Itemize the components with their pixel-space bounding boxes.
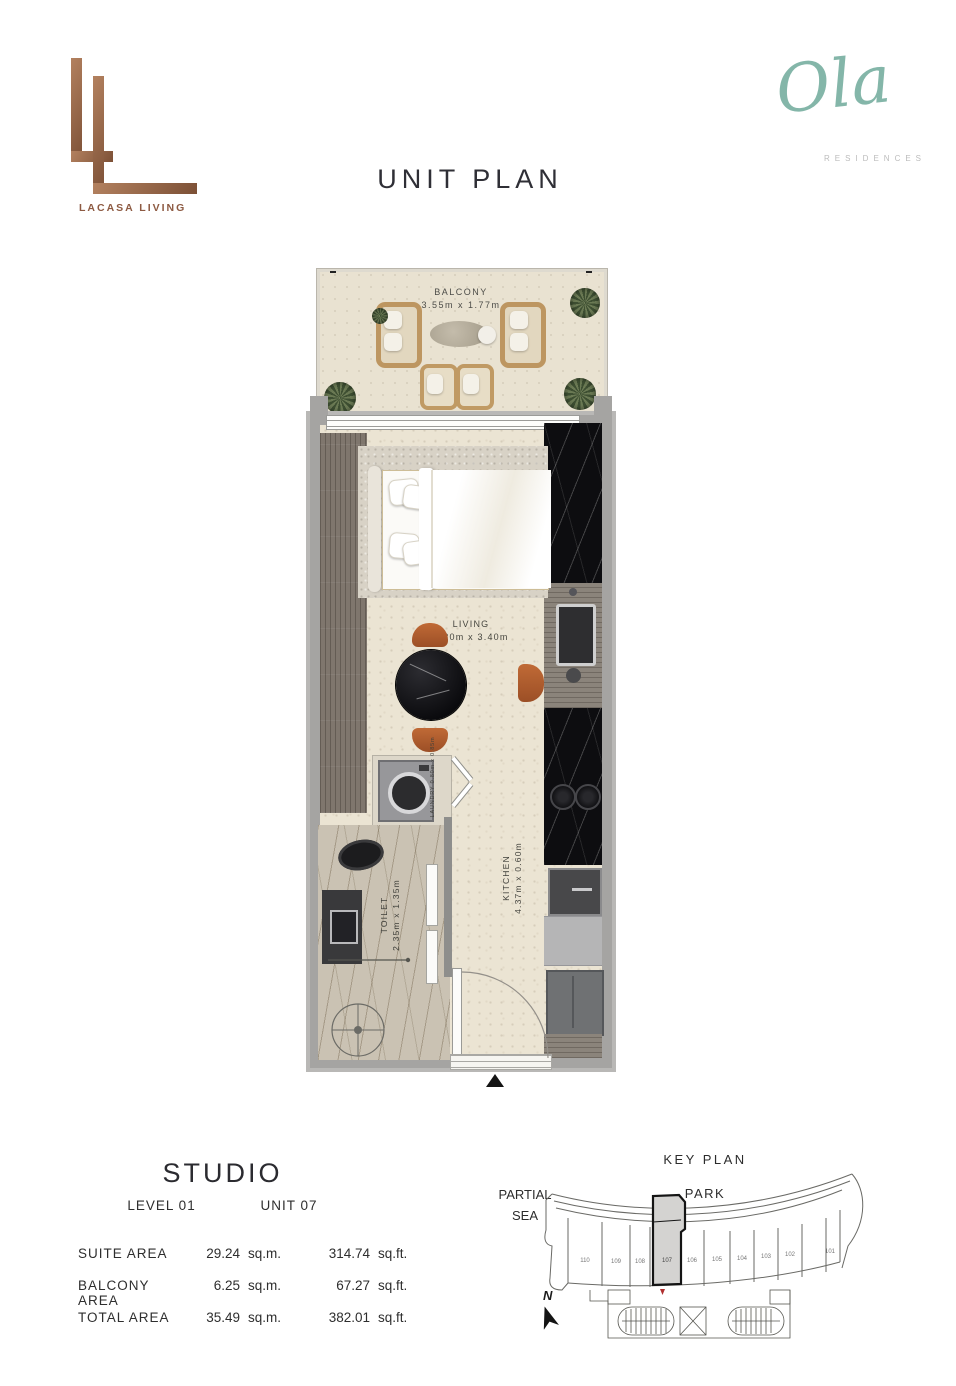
level-unit-row: LEVEL 01 UNIT 07: [95, 1198, 350, 1213]
entry-door-opening: [450, 1054, 552, 1070]
kitchen-counter-light: [544, 916, 602, 966]
balcony-sliding-door: [326, 415, 580, 430]
unit-plan-page: LACASA LIVING UNIT PLAN Ola RESIDENCES B…: [0, 0, 956, 1386]
plant-bottom-left: [324, 382, 356, 414]
lacasa-logo-mark: [71, 58, 82, 162]
entry-door-leaf: [452, 968, 462, 1062]
key-plan-unit-number: 106: [687, 1258, 698, 1264]
unit-type-title: STUDIO: [95, 1158, 350, 1189]
key-plan-unit-number: 104: [737, 1256, 748, 1262]
page-title: UNIT PLAN: [330, 164, 610, 195]
key-plan-unit-number: 103: [761, 1254, 772, 1260]
key-plan-unit-number: 109: [611, 1259, 622, 1265]
toilet-label: TOILET 2.35m x 1.35m: [378, 855, 402, 975]
balcony-label: BALCONY 3.55m x 1.77m: [316, 286, 606, 312]
entry-arrow-marker: [486, 1074, 504, 1087]
key-plan-unit-number: 102: [785, 1252, 796, 1258]
kitchen-sink-2: [548, 868, 602, 916]
dining-table: [396, 650, 466, 720]
key-plan-unit-number: 110: [580, 1258, 590, 1264]
unit-location-marker: [660, 1289, 665, 1295]
kitchen-faucet: [569, 588, 577, 596]
ola-script-text: Ola: [772, 40, 894, 129]
bed: [382, 470, 549, 590]
key-plan-unit-number: 108: [635, 1259, 646, 1265]
plant-top-right: [570, 288, 600, 318]
stove-burner-1: [550, 784, 576, 810]
table-row: SUITE AREA 29.24 sq.m. 314.74 sq.ft.: [78, 1246, 423, 1278]
key-plan-drawing: 110 109 108 107 106 105 104 103 102 101: [490, 1150, 956, 1386]
key-plan-unit-number: 105: [712, 1257, 723, 1263]
plant-bottom-right: [564, 378, 596, 410]
key-plan-unit-number: 107: [662, 1258, 673, 1264]
level-label: LEVEL 01: [127, 1198, 195, 1213]
lacasa-logo-text: LACASA LIVING: [79, 202, 186, 214]
kitchen-label: KITCHEN 4.37m x 0.60m: [500, 818, 524, 938]
ola-residences-logo: Ola RESIDENCES: [758, 52, 938, 192]
closet-black-marble: [544, 423, 602, 583]
stove-burner-2: [575, 784, 601, 810]
table-row: TOTAL AREA 35.49 sq.m. 382.01 sq.ft.: [78, 1310, 423, 1342]
plant-on-sofa: [372, 308, 388, 324]
floor-plan: BALCONY 3.55m x 1.77m: [310, 268, 612, 1090]
toilet-door-panel-1: [426, 864, 438, 926]
toilet-door-panel-2: [426, 930, 438, 984]
kitchen-sink: [556, 604, 596, 666]
key-plan-unit-number: 101: [825, 1249, 836, 1255]
highlighted-unit-107: [653, 1195, 685, 1285]
balcony-sofa-right: [500, 302, 546, 368]
unit-label: UNIT 07: [261, 1198, 318, 1213]
ola-subtitle: RESIDENCES: [824, 154, 926, 163]
area-table: SUITE AREA 29.24 sq.m. 314.74 sq.ft. BAL…: [78, 1246, 423, 1342]
laundry-label: LAUNDRY 0.80m x 0.85m: [429, 731, 437, 823]
table-row: BALCONY AREA 6.25 sq.m. 67.27 sq.ft.: [78, 1278, 423, 1310]
bed-headboard: [368, 466, 381, 592]
lacasa-living-logo: LACASA LIVING: [55, 56, 215, 178]
toilet-vanity: [322, 890, 362, 964]
washing-machine: [378, 760, 434, 822]
balcony-chair-1: [420, 364, 458, 410]
dining-chair-top: [412, 623, 448, 647]
fridge: [546, 970, 604, 1036]
balcony-chair-2: [456, 364, 494, 410]
balcony-side-table: [478, 326, 496, 344]
